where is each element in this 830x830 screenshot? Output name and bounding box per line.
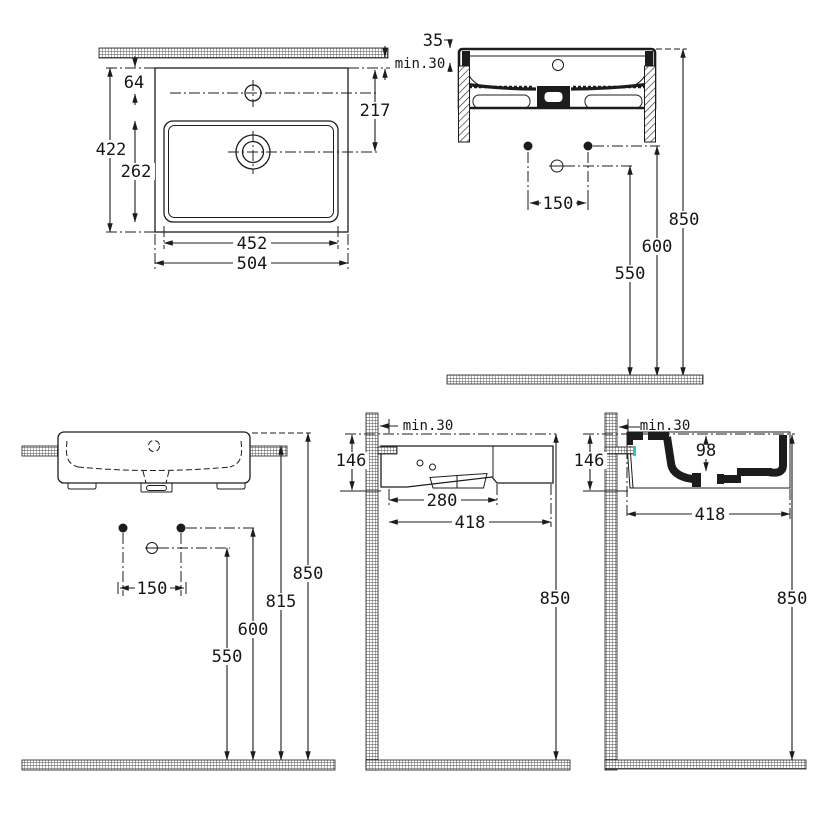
drain-slot xyxy=(545,92,563,102)
plan-view: 422 64 262 217 452 504 min.30 xyxy=(92,46,445,274)
dim-64: 64 xyxy=(124,73,144,93)
fixing-hole-2 xyxy=(430,464,436,470)
dim-35: 35 xyxy=(423,31,443,51)
side-bracket-left xyxy=(459,66,470,142)
dim-262: 262 xyxy=(121,162,152,182)
mounting-rail xyxy=(605,447,635,454)
section-view: 98 min.30 146 418 850 xyxy=(573,413,812,770)
mounting-rail xyxy=(378,447,397,454)
dim-850: 850 xyxy=(293,564,324,584)
side-view: min.30 146 280 418 850 xyxy=(335,413,575,770)
dim-146: 146 xyxy=(336,451,367,471)
front-wall-cut xyxy=(768,435,783,473)
mounting-rail-left xyxy=(22,446,58,456)
foot-left xyxy=(68,483,96,489)
dim-422: 422 xyxy=(96,140,127,160)
front-view: 35 550 600 850 150 xyxy=(423,31,703,384)
dim-280: 280 xyxy=(427,491,458,511)
dim-600: 600 xyxy=(238,620,269,640)
foot-right xyxy=(217,483,245,489)
dim-min30: min.30 xyxy=(403,418,454,434)
technical-drawing-sheet: 422 64 262 217 452 504 min.30 xyxy=(0,0,830,830)
floor-hatch xyxy=(447,375,703,384)
dim-150: 150 xyxy=(543,194,574,214)
dim-98: 98 xyxy=(696,441,716,461)
dim-min30-plan: min.30 xyxy=(395,56,446,72)
drain-centerlines xyxy=(228,131,378,174)
basin-body xyxy=(58,432,250,483)
mounting-hole-left xyxy=(119,524,128,533)
dim-150: 150 xyxy=(137,579,168,599)
drain-gap xyxy=(701,474,717,486)
drain-lip-right xyxy=(717,474,724,484)
rim-section-left xyxy=(462,51,470,66)
washbasin-dimension-diagram: 422 64 262 217 452 504 min.30 xyxy=(0,0,830,830)
bowl-inner-outline xyxy=(169,126,334,218)
faucet-centerlines xyxy=(170,80,378,107)
basin-side-profile xyxy=(381,446,553,487)
dim-600: 600 xyxy=(642,237,673,257)
faucet-hole-hidden xyxy=(149,441,160,452)
mounting-hole-right xyxy=(177,524,186,533)
dim-min30: min.30 xyxy=(640,418,691,434)
dim-418: 418 xyxy=(695,505,726,525)
dim-550: 550 xyxy=(615,264,646,284)
dim-217: 217 xyxy=(360,101,391,121)
floor-hatch xyxy=(366,760,570,770)
side-bracket-right xyxy=(645,66,656,142)
drain-lip-left xyxy=(692,473,701,487)
dim-146: 146 xyxy=(574,451,605,471)
floor-hatch xyxy=(22,760,335,770)
dim-850: 850 xyxy=(669,210,700,230)
dim-504: 504 xyxy=(237,254,268,274)
highlight-mark xyxy=(633,446,636,456)
mounting-hole-right xyxy=(584,142,593,151)
dim-850: 850 xyxy=(777,589,808,609)
bowl-hidden-line xyxy=(78,467,230,471)
front-installed-view: 550 600 815 850 150 xyxy=(22,432,335,770)
dim-550: 550 xyxy=(212,647,243,667)
rim-section-right xyxy=(645,51,653,66)
dim-452: 452 xyxy=(237,234,268,254)
dim-418: 418 xyxy=(455,513,486,533)
floor-hatch xyxy=(605,760,806,769)
bowl-rim-outline xyxy=(164,121,338,222)
fixing-hole-1 xyxy=(417,460,423,466)
wall-hatch xyxy=(99,48,388,58)
mounting-hole-left xyxy=(524,142,533,151)
dim-850: 850 xyxy=(540,589,571,609)
dim-815: 815 xyxy=(266,592,297,612)
